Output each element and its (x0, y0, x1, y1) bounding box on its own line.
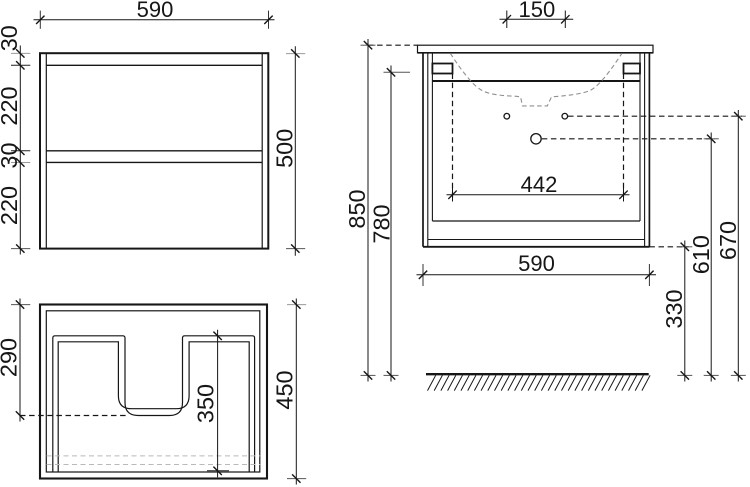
svg-text:290: 290 (0, 338, 22, 377)
svg-text:150: 150 (519, 0, 556, 22)
svg-text:442: 442 (521, 172, 558, 197)
svg-text:350: 350 (193, 384, 219, 423)
svg-text:590: 590 (137, 0, 174, 22)
svg-text:610: 610 (688, 235, 714, 274)
svg-text:780: 780 (369, 204, 395, 243)
svg-text:670: 670 (715, 221, 741, 260)
svg-text:590: 590 (518, 251, 555, 276)
svg-text:220: 220 (0, 186, 22, 225)
svg-text:30: 30 (0, 142, 22, 168)
svg-text:450: 450 (272, 370, 298, 409)
svg-text:30: 30 (0, 25, 22, 51)
svg-text:330: 330 (661, 289, 687, 328)
svg-text:220: 220 (0, 86, 22, 125)
svg-text:850: 850 (344, 189, 370, 228)
svg-text:500: 500 (271, 129, 297, 168)
